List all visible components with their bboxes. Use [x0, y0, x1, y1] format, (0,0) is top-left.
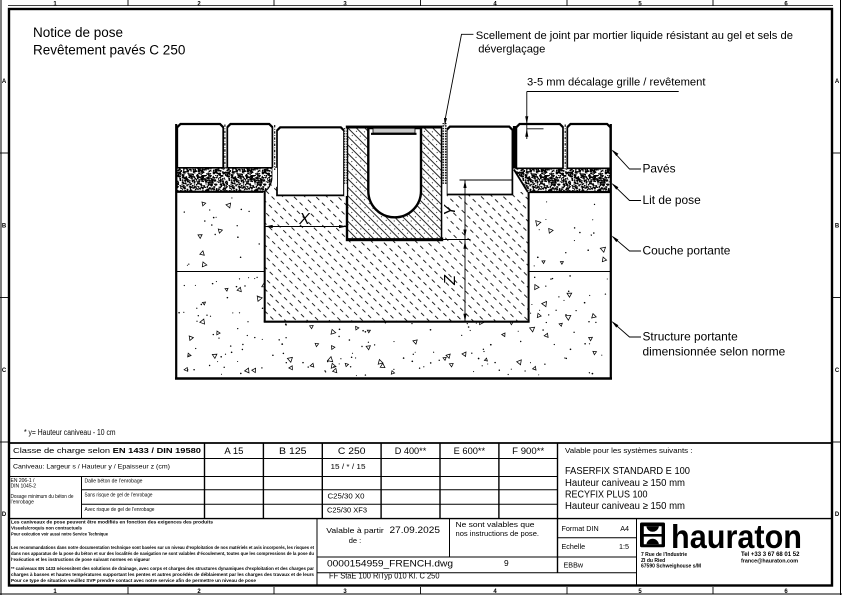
- svg-text:D 400**: D 400**: [395, 446, 427, 456]
- svg-text:Valable pour les systèmes suiv: Valable pour les systèmes suivants :: [565, 446, 693, 455]
- svg-text:Visuels/croquis non contractue: Visuels/croquis non contractuels: [11, 526, 83, 531]
- svg-text:dimensionnée selon norme: dimensionnée selon norme: [643, 345, 786, 359]
- svg-text:A: A: [835, 79, 840, 85]
- svg-text:B: B: [2, 224, 7, 230]
- svg-text:Hauteur caniveau ≥ 150 mm: Hauteur caniveau ≥ 150 mm: [565, 478, 685, 489]
- svg-text:Notice de pose: Notice de pose: [33, 25, 123, 40]
- svg-text:B: B: [835, 224, 840, 230]
- svg-text:FASERFIX STANDARD E 100: FASERFIX STANDARD E 100: [565, 466, 690, 477]
- svg-text:Scellement de joint par mortie: Scellement de joint par mortier liquide …: [476, 30, 793, 42]
- svg-text:Sans risque de gel de l’enroba: Sans risque de gel de l’enrobage: [85, 493, 153, 499]
- svg-text:C25/30 XF3: C25/30 XF3: [327, 508, 367, 515]
- svg-text:RECYFIX PLUS 100: RECYFIX PLUS 100: [565, 489, 648, 500]
- svg-text:Couche portante: Couche portante: [643, 244, 731, 258]
- svg-text:Classe de charge selon EN 1433: Classe de charge selon EN 1433 / DIN 195…: [13, 446, 201, 455]
- svg-text:Revêtement pavés C 250: Revêtement pavés C 250: [33, 42, 185, 57]
- svg-text:DIN 1045-2: DIN 1045-2: [11, 484, 37, 490]
- svg-text:B 125: B 125: [279, 446, 307, 456]
- svg-text:dans nos apparatus de la pose: dans nos apparatus de la pose du béton e…: [11, 551, 314, 556]
- svg-text:charges à basses et hautes tem: charges à basses et hautes températures …: [11, 572, 315, 577]
- svg-text:** caniveaux EN 1433 nécessite: ** caniveaux EN 1433 nécessitent des sol…: [11, 566, 314, 571]
- svg-text:Dalle béton de l’enrobage: Dalle béton de l’enrobage: [85, 479, 143, 485]
- svg-text:Tel +33 3 67 68 01 52: Tel +33 3 67 68 01 52: [741, 552, 800, 558]
- svg-text:F 900**: F 900**: [512, 446, 545, 456]
- svg-text:l’enrobage: l’enrobage: [11, 500, 35, 506]
- svg-text:D: D: [2, 512, 7, 518]
- svg-text:EBBw: EBBw: [564, 561, 584, 570]
- svg-text:Hauteur caniveau ≥ 150 mm: Hauteur caniveau ≥ 150 mm: [565, 501, 685, 512]
- svg-text:C 250: C 250: [338, 446, 366, 456]
- svg-text:Ne sont valables que: Ne sont valables que: [456, 520, 535, 529]
- svg-text:de :: de :: [349, 536, 362, 545]
- svg-text:15 / * / 15: 15 / * / 15: [331, 464, 366, 471]
- svg-text:Les recommandations dans notre: Les recommandations dans notre documenta…: [11, 545, 315, 550]
- svg-text:* y= Hauteur caniveau - 10 cm: * y= Hauteur caniveau - 10 cm: [24, 428, 116, 437]
- svg-text:E 600**: E 600**: [454, 446, 486, 456]
- svg-text:FF StaE 100 RiTyp 010 Kl. C 2: FF StaE 100 RiTyp 010 Kl. C 250: [329, 572, 440, 581]
- svg-text:C: C: [835, 368, 840, 374]
- svg-text:Y: Y: [442, 204, 459, 216]
- svg-text:hauraton: hauraton: [671, 519, 802, 556]
- svg-text:Avec risque de gel de l’enroba: Avec risque de gel de l’enrobage: [85, 507, 155, 513]
- svg-text:0000154959_FRENCH.dwg: 0000154959_FRENCH.dwg: [327, 558, 453, 568]
- svg-text:D: D: [835, 512, 840, 518]
- svg-text:Pour ce type de situation veui: Pour ce type de situation veuillez SVP p…: [11, 578, 257, 583]
- svg-text:1:5: 1:5: [619, 542, 629, 551]
- svg-text:9: 9: [504, 558, 509, 568]
- svg-text:Format DIN: Format DIN: [562, 524, 599, 533]
- svg-text:A: A: [2, 79, 7, 85]
- svg-text:Echelle: Echelle: [562, 542, 586, 551]
- svg-text:Les caniveaux de pose peuvent: Les caniveaux de pose peuvent être modif…: [11, 519, 214, 524]
- svg-text:67590 Schweighouse s/M: 67590 Schweighouse s/M: [641, 563, 701, 569]
- svg-text:Lit de pose: Lit de pose: [643, 193, 702, 207]
- svg-text:27.09.2025: 27.09.2025: [390, 525, 441, 535]
- svg-text:nos instructions de pose.: nos instructions de pose.: [456, 529, 540, 538]
- svg-text:C25/30 X0: C25/30 X0: [328, 494, 365, 501]
- svg-text:l’exécution et les instruction: l’exécution et les instructions de pose …: [11, 557, 150, 562]
- svg-text:Valable à partir: Valable à partir: [326, 526, 384, 535]
- svg-text:Caniveau: Largeur s / Hauteur: Caniveau: Largeur s / Hauteur y / Epaiss…: [13, 463, 170, 470]
- svg-text:A 15: A 15: [224, 446, 243, 456]
- svg-text:C: C: [2, 368, 7, 374]
- svg-text:déverglaçage: déverglaçage: [478, 43, 545, 55]
- svg-text:france@hauraton.com: france@hauraton.com: [741, 559, 798, 565]
- svg-text:Structure portante: Structure portante: [643, 330, 739, 344]
- svg-text:3-5 mm décalage grille / revêt: 3-5 mm décalage grille / revêtement: [527, 77, 706, 89]
- svg-text:A4: A4: [620, 524, 629, 533]
- svg-text:Pavés: Pavés: [643, 162, 676, 176]
- svg-text:X: X: [298, 211, 311, 228]
- svg-text:Pour exécution voir aussi notr: Pour exécution voir aussi notre Service …: [11, 532, 109, 537]
- svg-text:Z: Z: [442, 274, 459, 286]
